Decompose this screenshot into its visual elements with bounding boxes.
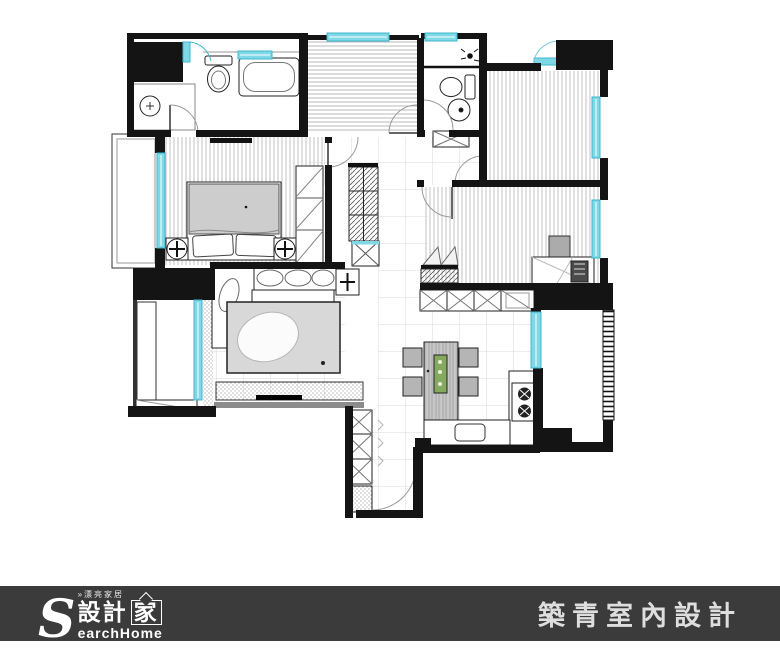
nightstand-lamp-icon bbox=[166, 238, 188, 260]
logo-tagline: »漂亮家居 bbox=[78, 591, 124, 599]
dot bbox=[245, 206, 248, 209]
soundbar bbox=[256, 395, 302, 400]
pillow bbox=[193, 234, 234, 257]
window-bedroom2 bbox=[592, 200, 600, 258]
toilet-icon bbox=[205, 56, 232, 92]
rug bbox=[227, 302, 340, 373]
balcony-wall bbox=[133, 300, 137, 410]
pillow bbox=[236, 234, 277, 256]
window-master-bedroom bbox=[157, 153, 165, 248]
logo-brand-zh: 設計家 bbox=[78, 600, 162, 625]
balcony-upper bbox=[112, 134, 160, 268]
column-cabinet bbox=[352, 241, 379, 266]
kitchen-sink-icon bbox=[455, 424, 485, 441]
balcony-sliding-door bbox=[194, 300, 202, 400]
dining-chair bbox=[403, 348, 422, 367]
bathtub-icon bbox=[239, 58, 299, 96]
bedroom-mid-floor bbox=[308, 40, 417, 133]
toilet-icon bbox=[440, 75, 475, 99]
door-arc bbox=[170, 105, 198, 133]
bed-duvet bbox=[189, 184, 279, 234]
footer-bar: S »漂亮家居 設計家 earchHome 築青室內設計 bbox=[0, 586, 780, 641]
balcony-door-arc bbox=[534, 41, 559, 60]
balcony-lower bbox=[133, 300, 197, 410]
ladder-hatch bbox=[603, 310, 614, 420]
dining-chair bbox=[459, 348, 478, 367]
door-arc bbox=[423, 100, 453, 130]
logo-brand-en: earchHome bbox=[78, 626, 163, 640]
sink-icon bbox=[448, 99, 470, 121]
wardrobe bbox=[296, 166, 323, 264]
floor-plan bbox=[0, 0, 780, 586]
window-top-bedroom-mid bbox=[327, 33, 389, 41]
searchhome-logo: S »漂亮家居 設計家 earchHome bbox=[38, 588, 163, 640]
window-top-bathroom2 bbox=[425, 33, 457, 41]
tall-cabinets bbox=[420, 290, 534, 311]
desk bbox=[532, 257, 594, 285]
planter bbox=[137, 302, 156, 401]
tv-console bbox=[214, 382, 364, 408]
logo-house-icon: 家 bbox=[131, 600, 162, 625]
window-bedroom-topright bbox=[592, 97, 600, 158]
tv-icon bbox=[549, 236, 570, 257]
side-table-lamp-icon bbox=[336, 269, 359, 295]
kitchen-glass-partition bbox=[531, 312, 541, 368]
curtain-box bbox=[210, 138, 252, 143]
dining-chair bbox=[403, 377, 422, 396]
window-master-bath bbox=[238, 51, 272, 59]
nightstand-lamp-icon bbox=[274, 238, 296, 260]
dining-chair bbox=[459, 377, 478, 396]
service-room bbox=[603, 310, 614, 420]
logo-s-glyph: S bbox=[38, 594, 76, 646]
company-name: 築青室內設計 bbox=[538, 594, 742, 633]
shower-icon bbox=[461, 49, 479, 61]
hall-closet bbox=[348, 163, 379, 266]
logo-brand-zh-text: 設計 bbox=[78, 601, 128, 624]
bedroom-topright-floor bbox=[487, 71, 600, 180]
